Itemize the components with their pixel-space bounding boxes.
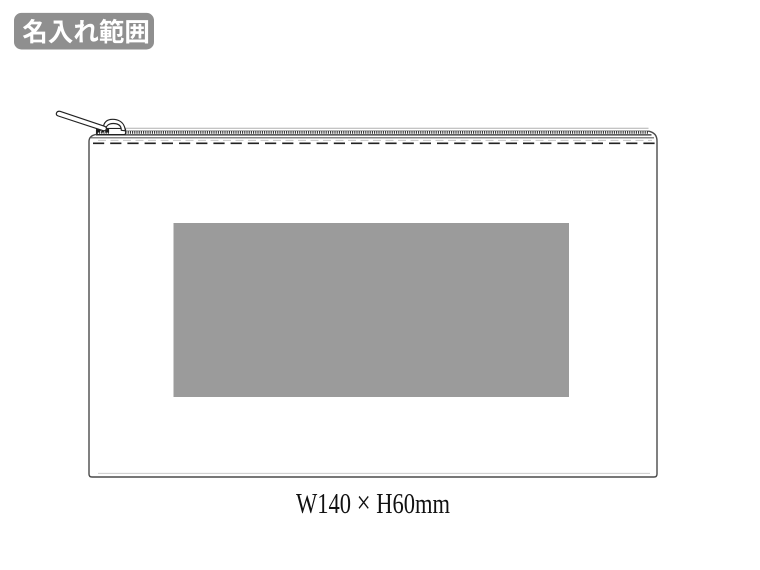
svg-text:W140 × H60mm: W140 × H60mm: [296, 484, 450, 520]
